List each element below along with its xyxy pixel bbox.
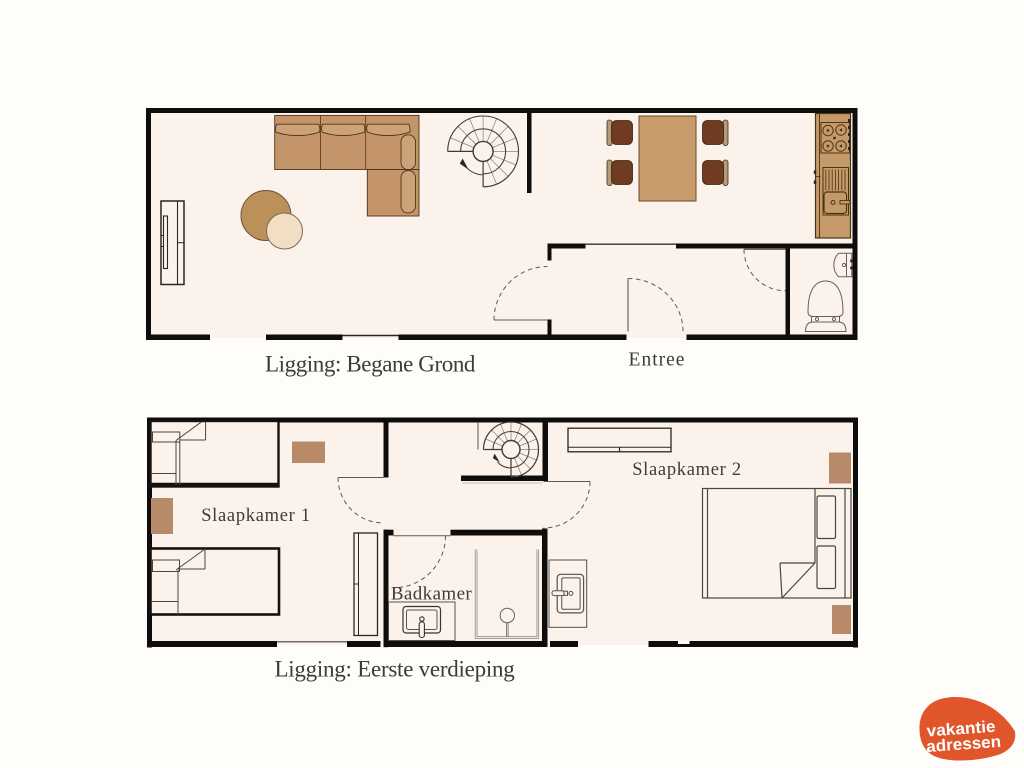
svg-text:Slaapkamer 1: Slaapkamer 1 bbox=[201, 506, 311, 526]
svg-text:Slaapkamer 2: Slaapkamer 2 bbox=[632, 460, 742, 480]
svg-text:Badkamer: Badkamer bbox=[391, 584, 473, 605]
svg-text:Entree: Entree bbox=[629, 350, 686, 371]
svg-text:Ligging: Begane Grond: Ligging: Begane Grond bbox=[265, 352, 476, 377]
svg-text:Ligging: Eerste verdieping: Ligging: Eerste verdieping bbox=[274, 657, 515, 682]
